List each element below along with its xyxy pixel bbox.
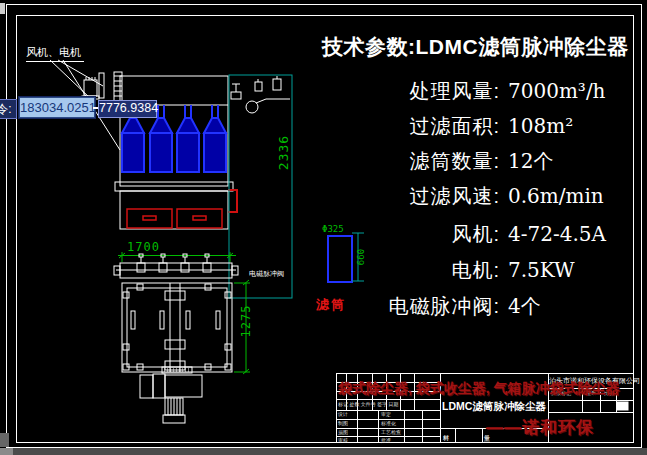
param-row: 滤筒数量:12个 [300, 148, 647, 175]
param-label: 滤筒数量: [300, 148, 500, 175]
param-label: 电机: [300, 257, 500, 284]
dim-660: 660 [356, 243, 366, 271]
dim-2336: 2336 [276, 129, 291, 177]
param-value: 12个 [508, 148, 553, 175]
dynamic-input-y[interactable]: 7776.9384 [98, 100, 157, 118]
param-row: 电机:7.5KW [300, 257, 647, 284]
top-view[interactable] [114, 254, 238, 372]
drawing-title: LDMC滤筒脉冲除尘器 [440, 400, 548, 414]
sig-row-design: 设计 [338, 412, 348, 417]
sig-row-check-mid: 批准 [381, 438, 391, 443]
dust-drawers[interactable] [127, 190, 237, 228]
tech-params-title: 技术参数:LDMC滤筒脉冲除尘器 [322, 33, 629, 61]
sig-row-trace-mid: 工艺检查 [381, 430, 401, 435]
watermark-brand: ——诺和环保 [486, 416, 594, 439]
bottom-ui-corner [0, 448, 13, 455]
param-value: 0.6m/min [508, 184, 604, 208]
sig-row-draft: 制图 [338, 421, 348, 426]
watermark-products: 袋式除尘器, 袋式收尘器, 气箱脉冲袋式除尘器 [338, 380, 620, 398]
scale-cell-highlight [617, 402, 628, 410]
command-prompt[interactable]: 令: [0, 99, 17, 119]
param-value: 4-72-4.5A [508, 222, 606, 246]
param-value: 108m² [508, 114, 573, 138]
pulse-valve-label: 电磁脉冲阀 [249, 269, 284, 279]
revision-header: 标记 处数 文件号 签字 日期 [338, 402, 438, 407]
param-label: 过滤面积: [300, 113, 500, 140]
param-value: 7.5KW [508, 258, 575, 282]
filter-cartridge-label: 滤筒 [316, 296, 346, 314]
param-value: 7000m³/h [508, 79, 606, 103]
sig-row-draft-mid: 标准化 [381, 421, 396, 426]
fan-motor-label: 风机、电机 [26, 45, 84, 62]
dynamic-input-x[interactable]: 183034.0251 [19, 97, 95, 118]
param-label: 处理风量: [300, 78, 500, 105]
sig-row-check: 审核 [338, 438, 348, 443]
bottom-ui-strip [0, 448, 647, 455]
param-row: 过滤面积:108m² [300, 113, 647, 140]
dim-1275: 1275 [239, 297, 253, 345]
param-row: 处理风量:7000m³/h [300, 78, 647, 105]
autocad-viewport: { "tech_params": { "title": "技术参数:LDMC滤筒… [0, 0, 647, 455]
param-row: 过滤风速:0.6m/min [300, 183, 647, 210]
ucs-fleck [0, 433, 9, 447]
ui-corner-fleck [0, 3, 5, 14]
sig-row-trace: 描图 [338, 430, 348, 435]
height-dimension-box[interactable] [229, 75, 292, 298]
dim-1700: 1700 [127, 240, 160, 254]
sig-row-design-mid: 审定 [381, 412, 391, 417]
param-label: 过滤风速: [300, 183, 500, 210]
dim-cartridge-dia: Φ325 [322, 224, 344, 234]
param-value: 4个 [508, 293, 541, 320]
param-row: 电磁脉冲阀:4个 [300, 293, 647, 320]
fan-bottom-view[interactable] [140, 367, 202, 423]
param-row: 风机:4-72-4.5A [300, 221, 647, 248]
